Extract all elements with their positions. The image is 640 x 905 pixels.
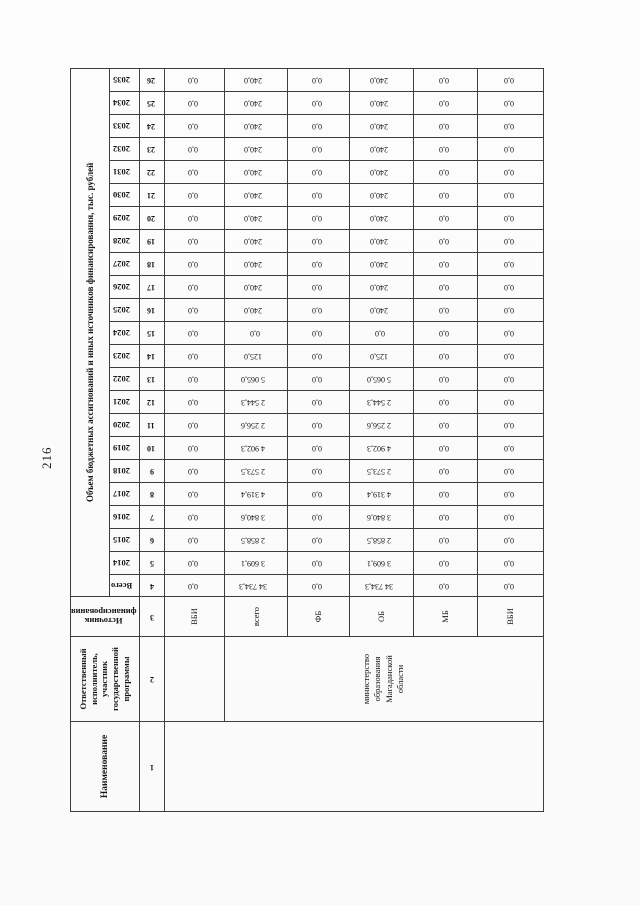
cell-text: 0,0 xyxy=(188,559,198,567)
year-header: 2021 xyxy=(109,391,139,414)
value-cell: 0,0 xyxy=(413,207,477,230)
cell-text: 2 858,5 xyxy=(241,536,265,544)
cell-text: 0,0 xyxy=(504,237,514,245)
cell-text: 0,0 xyxy=(439,99,449,107)
cell-text: 19 xyxy=(147,237,155,245)
cell-text: 2031 xyxy=(113,168,130,177)
value-cell: 240,0 xyxy=(224,230,287,253)
value-cell: 0,0 xyxy=(413,138,477,161)
value-cell: 240,0 xyxy=(224,161,287,184)
value-cell: 0,0 xyxy=(413,253,477,276)
cell-text: 2026 xyxy=(113,283,130,292)
total-value-cell: 34 734,3 xyxy=(349,575,413,597)
cell-text: 0,0 xyxy=(188,122,198,130)
cell-text: 2033 xyxy=(113,122,130,131)
cell-text: 240,0 xyxy=(244,145,262,153)
value-cell: 240,0 xyxy=(224,184,287,207)
cell-text: 0,0 xyxy=(504,191,514,199)
cell-text: 0,0 xyxy=(312,352,322,360)
value-cell: 240,0 xyxy=(349,161,413,184)
value-cell: 0,0 xyxy=(413,161,477,184)
cell-text: 240,0 xyxy=(370,122,388,130)
year-header: 2033 xyxy=(109,115,139,138)
value-cell: 0,0 xyxy=(477,322,543,345)
column-number: 15 xyxy=(139,322,164,345)
value-cell: 0,0 xyxy=(413,68,477,91)
value-cell: 0,0 xyxy=(287,345,349,368)
cell-text: 240,0 xyxy=(370,191,388,199)
column-number: 10 xyxy=(139,437,164,460)
cell-text: 6 xyxy=(150,536,154,544)
value-cell: 2 256,6 xyxy=(349,414,413,437)
cell-text: 0,0 xyxy=(504,145,514,153)
cell-text: 18 xyxy=(147,260,155,268)
value-cell: 0,0 xyxy=(413,552,477,575)
cell-text: 25 xyxy=(147,99,155,107)
value-cell: 4 902,3 xyxy=(349,437,413,460)
year-header: 2020 xyxy=(109,414,139,437)
cell-text: 23 xyxy=(147,145,155,153)
value-cell: 240,0 xyxy=(349,115,413,138)
total-value-cell: 0,0 xyxy=(477,575,543,597)
cell-text: 0,0 xyxy=(312,237,322,245)
cell-text: 0,0 xyxy=(188,260,198,268)
cell-text: 240,0 xyxy=(244,237,262,245)
value-cell: 240,0 xyxy=(224,253,287,276)
cell-text: 0,0 xyxy=(312,214,322,222)
value-cell: 2 256,6 xyxy=(224,414,287,437)
value-cell: 0,0 xyxy=(413,299,477,322)
column-number: 6 xyxy=(139,529,164,552)
cell-text: 240,0 xyxy=(244,283,262,291)
source-cell: всего xyxy=(224,597,287,637)
value-cell: 0,0 xyxy=(164,276,224,299)
header-row: Наименование Ответственный исполнитель, … xyxy=(71,68,110,811)
cell-text: 0,0 xyxy=(439,283,449,291)
cell-text: 5 065,0 xyxy=(367,375,391,383)
cell-text: 0,0 xyxy=(504,421,514,429)
value-cell: 0,0 xyxy=(164,345,224,368)
column-number: 12 xyxy=(139,391,164,414)
cell-text: 0,0 xyxy=(439,375,449,383)
cell-text: 21 xyxy=(147,191,155,199)
value-cell: 0,0 xyxy=(413,322,477,345)
source-cell: ВБИ xyxy=(164,597,224,637)
cell-text: 1 xyxy=(150,762,154,770)
cell-text: 0,0 xyxy=(312,559,322,567)
cell-text: 125,0 xyxy=(370,352,388,360)
value-cell: 240,0 xyxy=(224,92,287,115)
year-header: 2016 xyxy=(109,506,139,529)
cell-text: 2016 xyxy=(113,513,130,522)
cell-text: 0,0 xyxy=(312,490,322,498)
cell-text: 0,0 xyxy=(439,352,449,360)
cell-text: 2029 xyxy=(113,214,130,223)
cell-text: 0,0 xyxy=(312,145,322,153)
cell-text: 2 256,6 xyxy=(241,421,265,429)
value-cell: 240,0 xyxy=(224,276,287,299)
year-header: 2032 xyxy=(109,138,139,161)
cell-text: 2030 xyxy=(113,191,130,200)
cell-text: 0,0 xyxy=(188,398,198,406)
value-cell: 0,0 xyxy=(477,276,543,299)
cell-text: 0,0 xyxy=(504,581,514,589)
cell-text: 0,0 xyxy=(439,237,449,245)
value-cell: 0,0 xyxy=(413,345,477,368)
cell-text: 240,0 xyxy=(244,168,262,176)
value-cell: 2 544,3 xyxy=(224,391,287,414)
value-cell: 4 319,4 xyxy=(224,483,287,506)
column-number: 17 xyxy=(139,276,164,299)
value-cell: 240,0 xyxy=(224,138,287,161)
value-cell: 0,0 xyxy=(164,460,224,483)
cell-text: 0,0 xyxy=(312,283,322,291)
value-cell: 0,0 xyxy=(477,529,543,552)
value-cell: 240,0 xyxy=(349,230,413,253)
value-cell: 0,0 xyxy=(477,68,543,91)
cell-text: 0,0 xyxy=(312,536,322,544)
document-page: 216 Наименование Ответственный исполните… xyxy=(0,0,640,905)
header-executor: Ответственный исполнитель, участник госу… xyxy=(71,637,140,722)
value-cell: 0,0 xyxy=(413,437,477,460)
value-cell: 0,0 xyxy=(477,368,543,391)
cell-text: 240,0 xyxy=(244,260,262,268)
value-cell: 3 609,1 xyxy=(224,552,287,575)
cell-text: 0,0 xyxy=(312,581,322,589)
value-cell: 240,0 xyxy=(224,299,287,322)
cell-text: 240,0 xyxy=(370,76,388,84)
column-number: 19 xyxy=(139,230,164,253)
total-value-cell: 0,0 xyxy=(164,575,224,597)
cell-text: 0,0 xyxy=(439,122,449,130)
value-cell: 0,0 xyxy=(287,483,349,506)
cell-text: 2017 xyxy=(113,490,130,499)
cell-text: 0,0 xyxy=(312,260,322,268)
column-number: 23 xyxy=(139,138,164,161)
cell-text: 2035 xyxy=(113,75,130,84)
cell-text: 0,0 xyxy=(188,237,198,245)
cell-text: 2 573,5 xyxy=(241,467,265,475)
cell-text: 0,0 xyxy=(312,421,322,429)
value-cell: 0,0 xyxy=(349,322,413,345)
value-cell: 0,0 xyxy=(287,437,349,460)
value-cell: 0,0 xyxy=(287,207,349,230)
cell-text: 240,0 xyxy=(370,237,388,245)
cell-text: 0,0 xyxy=(504,283,514,291)
total-value-cell: 0,0 xyxy=(287,575,349,597)
value-cell: 0,0 xyxy=(287,184,349,207)
value-cell: 0,0 xyxy=(287,322,349,345)
year-header: 2028 xyxy=(109,230,139,253)
column-number: 4 xyxy=(139,575,164,597)
value-cell: 0,0 xyxy=(477,207,543,230)
value-cell: 0,0 xyxy=(164,299,224,322)
cell-text: 2 xyxy=(150,675,154,683)
value-cell: 0,0 xyxy=(477,138,543,161)
year-header: 2026 xyxy=(109,276,139,299)
cell-text: 9 xyxy=(150,467,154,475)
cell-text: 16 xyxy=(147,306,155,314)
column-number: 3 xyxy=(139,597,164,637)
cell-text: 0,0 xyxy=(439,214,449,222)
value-cell: 0,0 xyxy=(164,230,224,253)
year-header: 2029 xyxy=(109,207,139,230)
page-number-text: 216 xyxy=(39,447,54,470)
value-cell: 0,0 xyxy=(287,414,349,437)
column-number: 2 xyxy=(139,637,164,722)
cell-text: 0,0 xyxy=(439,467,449,475)
cell-text: 2024 xyxy=(113,329,130,338)
value-cell: 0,0 xyxy=(413,276,477,299)
value-cell: 0,0 xyxy=(164,207,224,230)
cell-text: 12 xyxy=(147,398,155,406)
cell-text: 0,0 xyxy=(188,513,198,521)
value-cell: 0,0 xyxy=(287,276,349,299)
cell-text: 240,0 xyxy=(370,260,388,268)
column-number: 14 xyxy=(139,345,164,368)
cell-text: 7 xyxy=(150,513,154,521)
value-cell: 0,0 xyxy=(287,230,349,253)
value-cell: 0,0 xyxy=(164,253,224,276)
value-cell: 240,0 xyxy=(349,276,413,299)
cell-text: 0,0 xyxy=(312,191,322,199)
cell-text: 0,0 xyxy=(504,306,514,314)
cell-text: 0,0 xyxy=(188,283,198,291)
cell-text: 5 065,0 xyxy=(241,375,265,383)
header-name: Наименование xyxy=(71,722,140,812)
header-total: Всего xyxy=(109,575,139,597)
year-header: 2025 xyxy=(109,299,139,322)
cell-text: 240,0 xyxy=(244,122,262,130)
cell-text: 240,0 xyxy=(244,76,262,84)
cell-text: 20 xyxy=(147,214,155,222)
cell-text: 8 xyxy=(150,490,154,498)
header-funding-source: Источник финансирования xyxy=(71,597,140,637)
cell-text: 2025 xyxy=(113,306,130,315)
cell-text: 0,0 xyxy=(439,581,449,589)
value-cell: 0,0 xyxy=(413,115,477,138)
cell-text: 0,0 xyxy=(312,513,322,521)
value-cell: 0,0 xyxy=(413,368,477,391)
cell-text: 0,0 xyxy=(188,191,198,199)
value-cell: 4 319,4 xyxy=(349,483,413,506)
value-cell: 240,0 xyxy=(349,68,413,91)
cell-text: 0,0 xyxy=(439,168,449,176)
cell-text: 0,0 xyxy=(504,559,514,567)
cell-text: 3 609,1 xyxy=(367,559,391,567)
cell-text: 125,0 xyxy=(244,352,262,360)
cell-text: 0,0 xyxy=(439,329,449,337)
value-cell: 0,0 xyxy=(164,414,224,437)
cell-text: 2019 xyxy=(113,444,130,453)
value-cell: 3 840,6 xyxy=(224,506,287,529)
cell-text: 3 609,1 xyxy=(241,559,265,567)
cell-text: 0,0 xyxy=(439,513,449,521)
value-cell: 0,0 xyxy=(477,345,543,368)
cell-text: 240,0 xyxy=(244,306,262,314)
cell-text: 240,0 xyxy=(244,214,262,222)
value-cell: 0,0 xyxy=(287,299,349,322)
cell-text: 26 xyxy=(147,76,155,84)
year-header: 2022 xyxy=(109,368,139,391)
value-cell: 0,0 xyxy=(287,552,349,575)
cell-text: 2014 xyxy=(113,559,130,568)
value-cell: 2 544,3 xyxy=(349,391,413,414)
source-cell: ФБ xyxy=(287,597,349,637)
cell-text: 240,0 xyxy=(370,168,388,176)
cell-text: 0,0 xyxy=(250,329,260,337)
executor-cell-empty xyxy=(164,637,224,722)
value-cell: 0,0 xyxy=(287,460,349,483)
value-cell: 0,0 xyxy=(164,184,224,207)
value-cell: 240,0 xyxy=(349,184,413,207)
value-cell: 0,0 xyxy=(287,68,349,91)
cell-text: 240,0 xyxy=(244,99,262,107)
cell-text: 4 902,3 xyxy=(241,444,265,452)
value-cell: 125,0 xyxy=(224,345,287,368)
cell-text: 0,0 xyxy=(439,421,449,429)
value-cell: 0,0 xyxy=(287,161,349,184)
total-value-cell: 0,0 xyxy=(413,575,477,597)
value-cell: 0,0 xyxy=(164,391,224,414)
value-cell: 0,0 xyxy=(477,230,543,253)
year-header: 2014 xyxy=(109,552,139,575)
value-cell: 0,0 xyxy=(287,92,349,115)
column-number: 22 xyxy=(139,161,164,184)
cell-text: 0,0 xyxy=(188,168,198,176)
year-header: 2034 xyxy=(109,92,139,115)
column-number: 11 xyxy=(139,414,164,437)
column-number: 24 xyxy=(139,115,164,138)
header-name-label: Наименование xyxy=(100,735,110,798)
cell-text: 0,0 xyxy=(504,122,514,130)
cell-text: 15 xyxy=(147,329,155,337)
year-header: 2035 xyxy=(109,68,139,91)
cell-text: 24 xyxy=(147,122,155,130)
value-cell: 0,0 xyxy=(164,68,224,91)
year-header: 2030 xyxy=(109,184,139,207)
value-cell: 240,0 xyxy=(349,253,413,276)
year-header: 2027 xyxy=(109,253,139,276)
cell-text: 0,0 xyxy=(188,490,198,498)
cell-text: 2 544,3 xyxy=(241,398,265,406)
cell-text: 4 319,4 xyxy=(367,490,391,498)
value-cell: 0,0 xyxy=(164,437,224,460)
column-number: 20 xyxy=(139,207,164,230)
cell-text: 240,0 xyxy=(370,214,388,222)
value-cell: 4 902,3 xyxy=(224,437,287,460)
value-cell: 0,0 xyxy=(287,368,349,391)
column-number-row: 1234567891011121314151617181920212223242… xyxy=(139,68,164,811)
cell-text: 0,0 xyxy=(439,145,449,153)
value-cell: 0,0 xyxy=(287,253,349,276)
cell-text: 0,0 xyxy=(312,329,322,337)
value-cell: 0,0 xyxy=(413,230,477,253)
total-value-cell: 34 734,3 xyxy=(224,575,287,597)
value-cell: 0,0 xyxy=(477,391,543,414)
cell-text: 0,0 xyxy=(312,375,322,383)
source-cell: ОБ xyxy=(349,597,413,637)
value-cell: 0,0 xyxy=(477,552,543,575)
cell-text: 2027 xyxy=(113,260,130,269)
value-cell: 2 573,5 xyxy=(224,460,287,483)
value-cell: 0,0 xyxy=(287,391,349,414)
name-cell-empty xyxy=(164,722,543,812)
cell-text: 2021 xyxy=(113,398,130,407)
cell-text: 0,0 xyxy=(504,76,514,84)
value-cell: 0,0 xyxy=(164,115,224,138)
source-cell: ВБИ xyxy=(477,597,543,637)
cell-text: 0,0 xyxy=(312,444,322,452)
value-cell: 0,0 xyxy=(477,506,543,529)
column-number: 1 xyxy=(139,722,164,812)
table-row: ВБИ0,00,00,00,00,00,00,00,00,00,00,00,00… xyxy=(164,68,224,811)
cell-text: 0,0 xyxy=(188,306,198,314)
header-total-label: Всего xyxy=(111,581,132,590)
value-cell: 0,0 xyxy=(477,184,543,207)
cell-text: 14 xyxy=(147,352,155,360)
column-number: 5 xyxy=(139,552,164,575)
cell-text: 22 xyxy=(147,168,155,176)
cell-text: 2 858,5 xyxy=(367,536,391,544)
value-cell: 0,0 xyxy=(164,529,224,552)
cell-text: 2032 xyxy=(113,145,130,154)
cell-text: 240,0 xyxy=(370,306,388,314)
value-cell: 0,0 xyxy=(477,161,543,184)
column-number: 7 xyxy=(139,506,164,529)
page-number: 216 xyxy=(39,447,55,470)
value-cell: 0,0 xyxy=(477,483,543,506)
column-number: 13 xyxy=(139,368,164,391)
value-cell: 240,0 xyxy=(224,68,287,91)
column-number: 9 xyxy=(139,460,164,483)
cell-text: 0,0 xyxy=(504,352,514,360)
value-cell: 0,0 xyxy=(413,92,477,115)
value-cell: 0,0 xyxy=(164,92,224,115)
value-cell: 0,0 xyxy=(224,322,287,345)
cell-text: 0,0 xyxy=(312,467,322,475)
budget-table: Наименование Ответственный исполнитель, … xyxy=(70,68,544,812)
value-cell: 240,0 xyxy=(349,92,413,115)
cell-text: 10 xyxy=(147,444,155,452)
cell-text: 3 840,6 xyxy=(367,513,391,521)
value-cell: 0,0 xyxy=(413,184,477,207)
cell-text: 2023 xyxy=(113,352,130,361)
cell-text: 0,0 xyxy=(188,76,198,84)
column-number: 16 xyxy=(139,299,164,322)
cell-text: 0,0 xyxy=(439,444,449,452)
value-cell: 0,0 xyxy=(287,115,349,138)
cell-text: 0,0 xyxy=(439,306,449,314)
cell-text: 11 xyxy=(147,421,155,429)
cell-text: 17 xyxy=(147,283,155,291)
value-cell: 0,0 xyxy=(164,368,224,391)
value-cell: 0,0 xyxy=(413,460,477,483)
cell-text: 0,0 xyxy=(504,375,514,383)
value-cell: 0,0 xyxy=(413,506,477,529)
cell-text: 0,0 xyxy=(504,490,514,498)
year-header: 2023 xyxy=(109,345,139,368)
value-cell: 240,0 xyxy=(349,207,413,230)
cell-text: 2018 xyxy=(113,467,130,476)
value-cell: 0,0 xyxy=(477,460,543,483)
value-cell: 0,0 xyxy=(477,115,543,138)
value-cell: 0,0 xyxy=(164,483,224,506)
cell-text: 0,0 xyxy=(188,467,198,475)
cell-text: 2028 xyxy=(113,237,130,246)
value-cell: 0,0 xyxy=(287,529,349,552)
cell-text: 0,0 xyxy=(188,329,198,337)
